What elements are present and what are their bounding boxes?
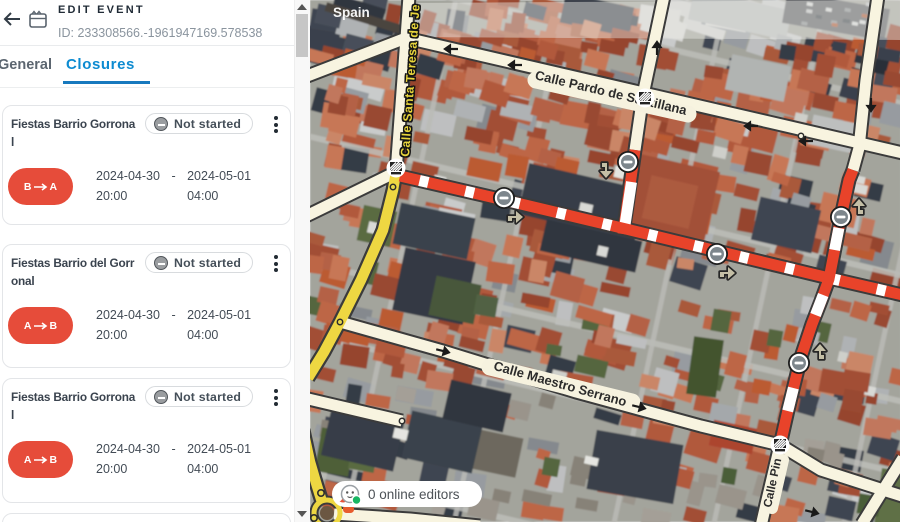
svg-text:0 online editors: 0 online editors — [368, 487, 460, 502]
svg-text:Spain: Spain — [333, 5, 370, 20]
